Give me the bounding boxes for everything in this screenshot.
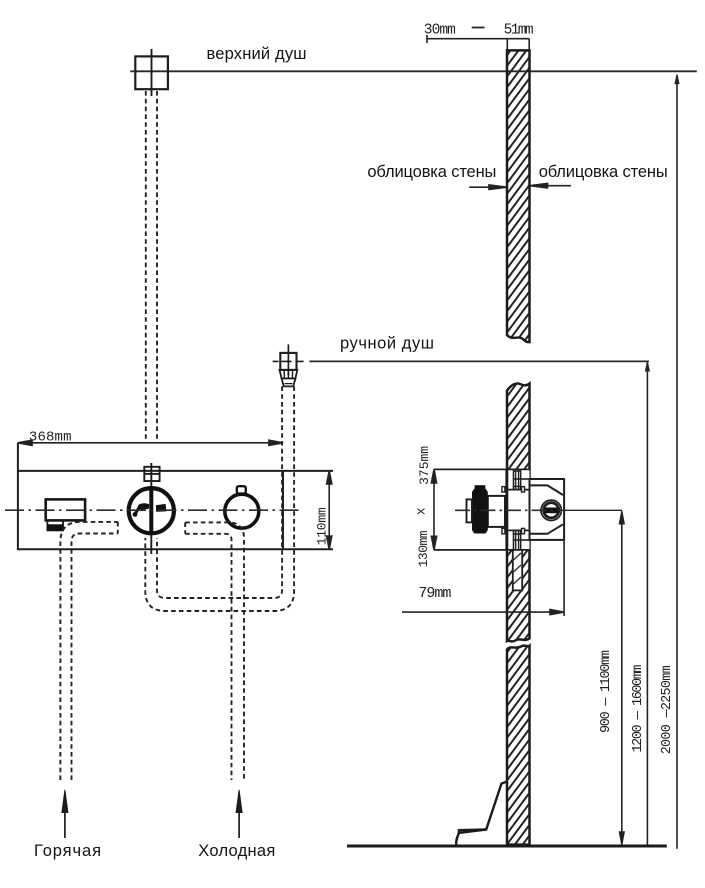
svg-text:1200 — 1600mm: 1200 — 1600mm [631,665,646,753]
svg-text:2000 —2250mm: 2000 —2250mm [660,665,675,754]
svg-text:110mm: 110mm [314,507,329,545]
svg-text:облицовка стены: облицовка стены [539,163,668,181]
svg-text:375mm: 375mm [417,446,432,485]
svg-text:верхний душ: верхний душ [207,45,307,63]
svg-text:79mm: 79mm [418,585,451,602]
svg-text:30mm: 30mm [424,23,456,39]
svg-text:368mm: 368mm [29,429,72,445]
svg-text:облицовка стены: облицовка стены [367,163,496,181]
svg-text:900 — 1100mm: 900 — 1100mm [599,650,614,733]
svg-text:ручной душ: ручной душ [340,335,434,353]
svg-text:130mm: 130mm [416,530,431,567]
svg-text:x: x [414,507,429,515]
svg-text:Горячая: Горячая [34,842,101,860]
svg-text:Холодная: Холодная [198,842,275,860]
svg-text:51mm: 51mm [504,23,534,39]
